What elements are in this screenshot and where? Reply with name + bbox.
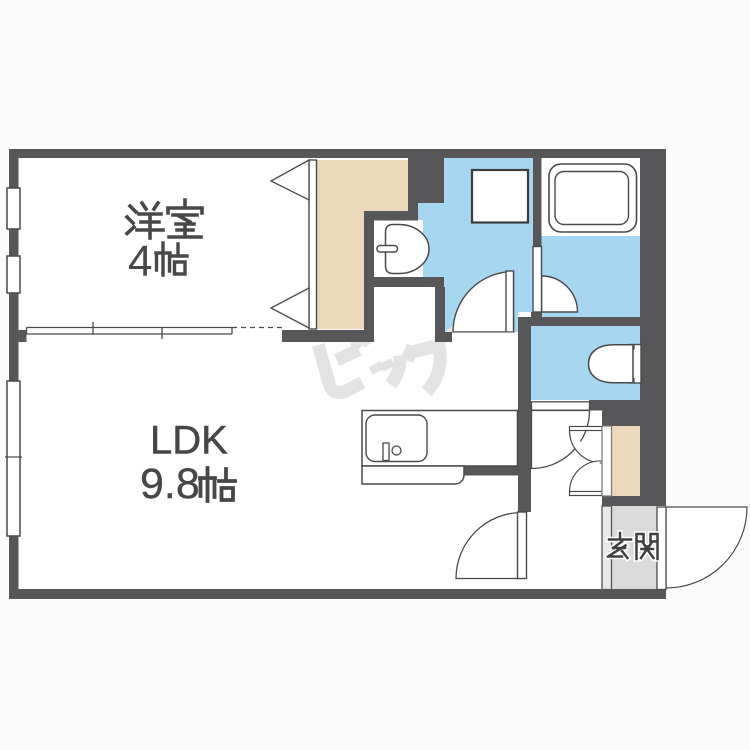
svg-text:9.8: 9.8	[140, 460, 200, 508]
svg-text:LDK: LDK	[150, 419, 228, 463]
svg-text:4: 4	[128, 237, 152, 286]
